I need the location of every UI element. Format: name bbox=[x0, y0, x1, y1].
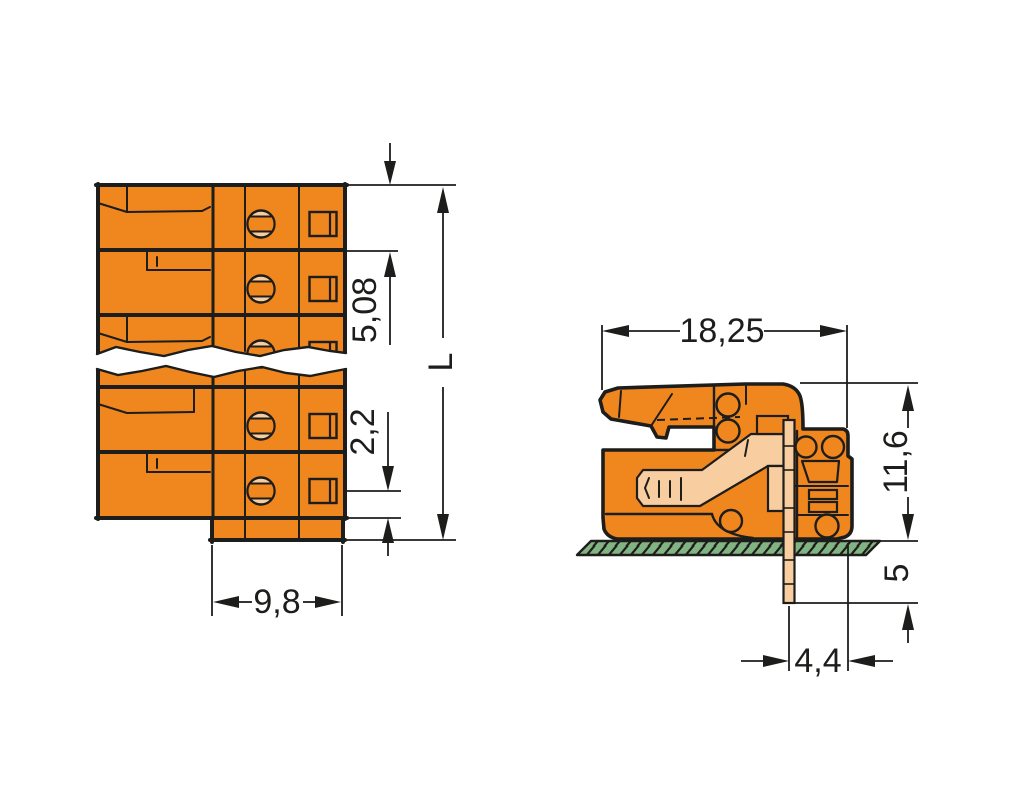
front-body-ledge bbox=[212, 518, 343, 540]
dim-pin-offset-label: 4,4 bbox=[794, 642, 841, 680]
screw-head-icon bbox=[248, 413, 275, 440]
side-view bbox=[577, 384, 880, 603]
dim-pitch: 5,08 bbox=[346, 143, 396, 345]
front-body-upper bbox=[97, 185, 346, 356]
dimension-drawing: 5,08 2,2 L 9,8 bbox=[0, 0, 1019, 795]
terminal-opening-icon bbox=[310, 277, 337, 301]
dim-height-label: 11,6 bbox=[877, 430, 915, 494]
solder-pin bbox=[783, 420, 795, 603]
terminal-opening-icon bbox=[310, 414, 337, 438]
dim-width-label: 18,25 bbox=[679, 312, 764, 350]
dim-depth-label: 9,8 bbox=[253, 583, 300, 621]
front-view bbox=[94, 184, 349, 542]
screw-head-icon bbox=[248, 276, 275, 303]
dim-overall-length: L bbox=[422, 187, 460, 540]
dim-height: 11,6 bbox=[877, 385, 915, 540]
break-lines bbox=[94, 346, 349, 377]
screw-head-icon bbox=[248, 211, 275, 238]
dim-pitch-label: 5,08 bbox=[346, 277, 384, 343]
screw-head-icon bbox=[248, 478, 275, 505]
terminal-opening-icon bbox=[310, 212, 337, 236]
drawing-canvas: 5,08 2,2 L 9,8 bbox=[0, 0, 1019, 795]
dim-pole-offset-label: 2,2 bbox=[344, 408, 382, 455]
terminal-opening-icon bbox=[310, 479, 337, 503]
dim-width: 18,25 bbox=[602, 312, 847, 350]
dim-pole-offset: 2,2 bbox=[344, 408, 394, 556]
pcb bbox=[577, 541, 880, 555]
dim-overall-length-label: L bbox=[422, 353, 460, 372]
dim-depth: 9,8 bbox=[213, 583, 341, 621]
dim-pin-length-label: 5 bbox=[878, 564, 916, 583]
dim-pin-offset: 4,4 bbox=[741, 642, 893, 680]
